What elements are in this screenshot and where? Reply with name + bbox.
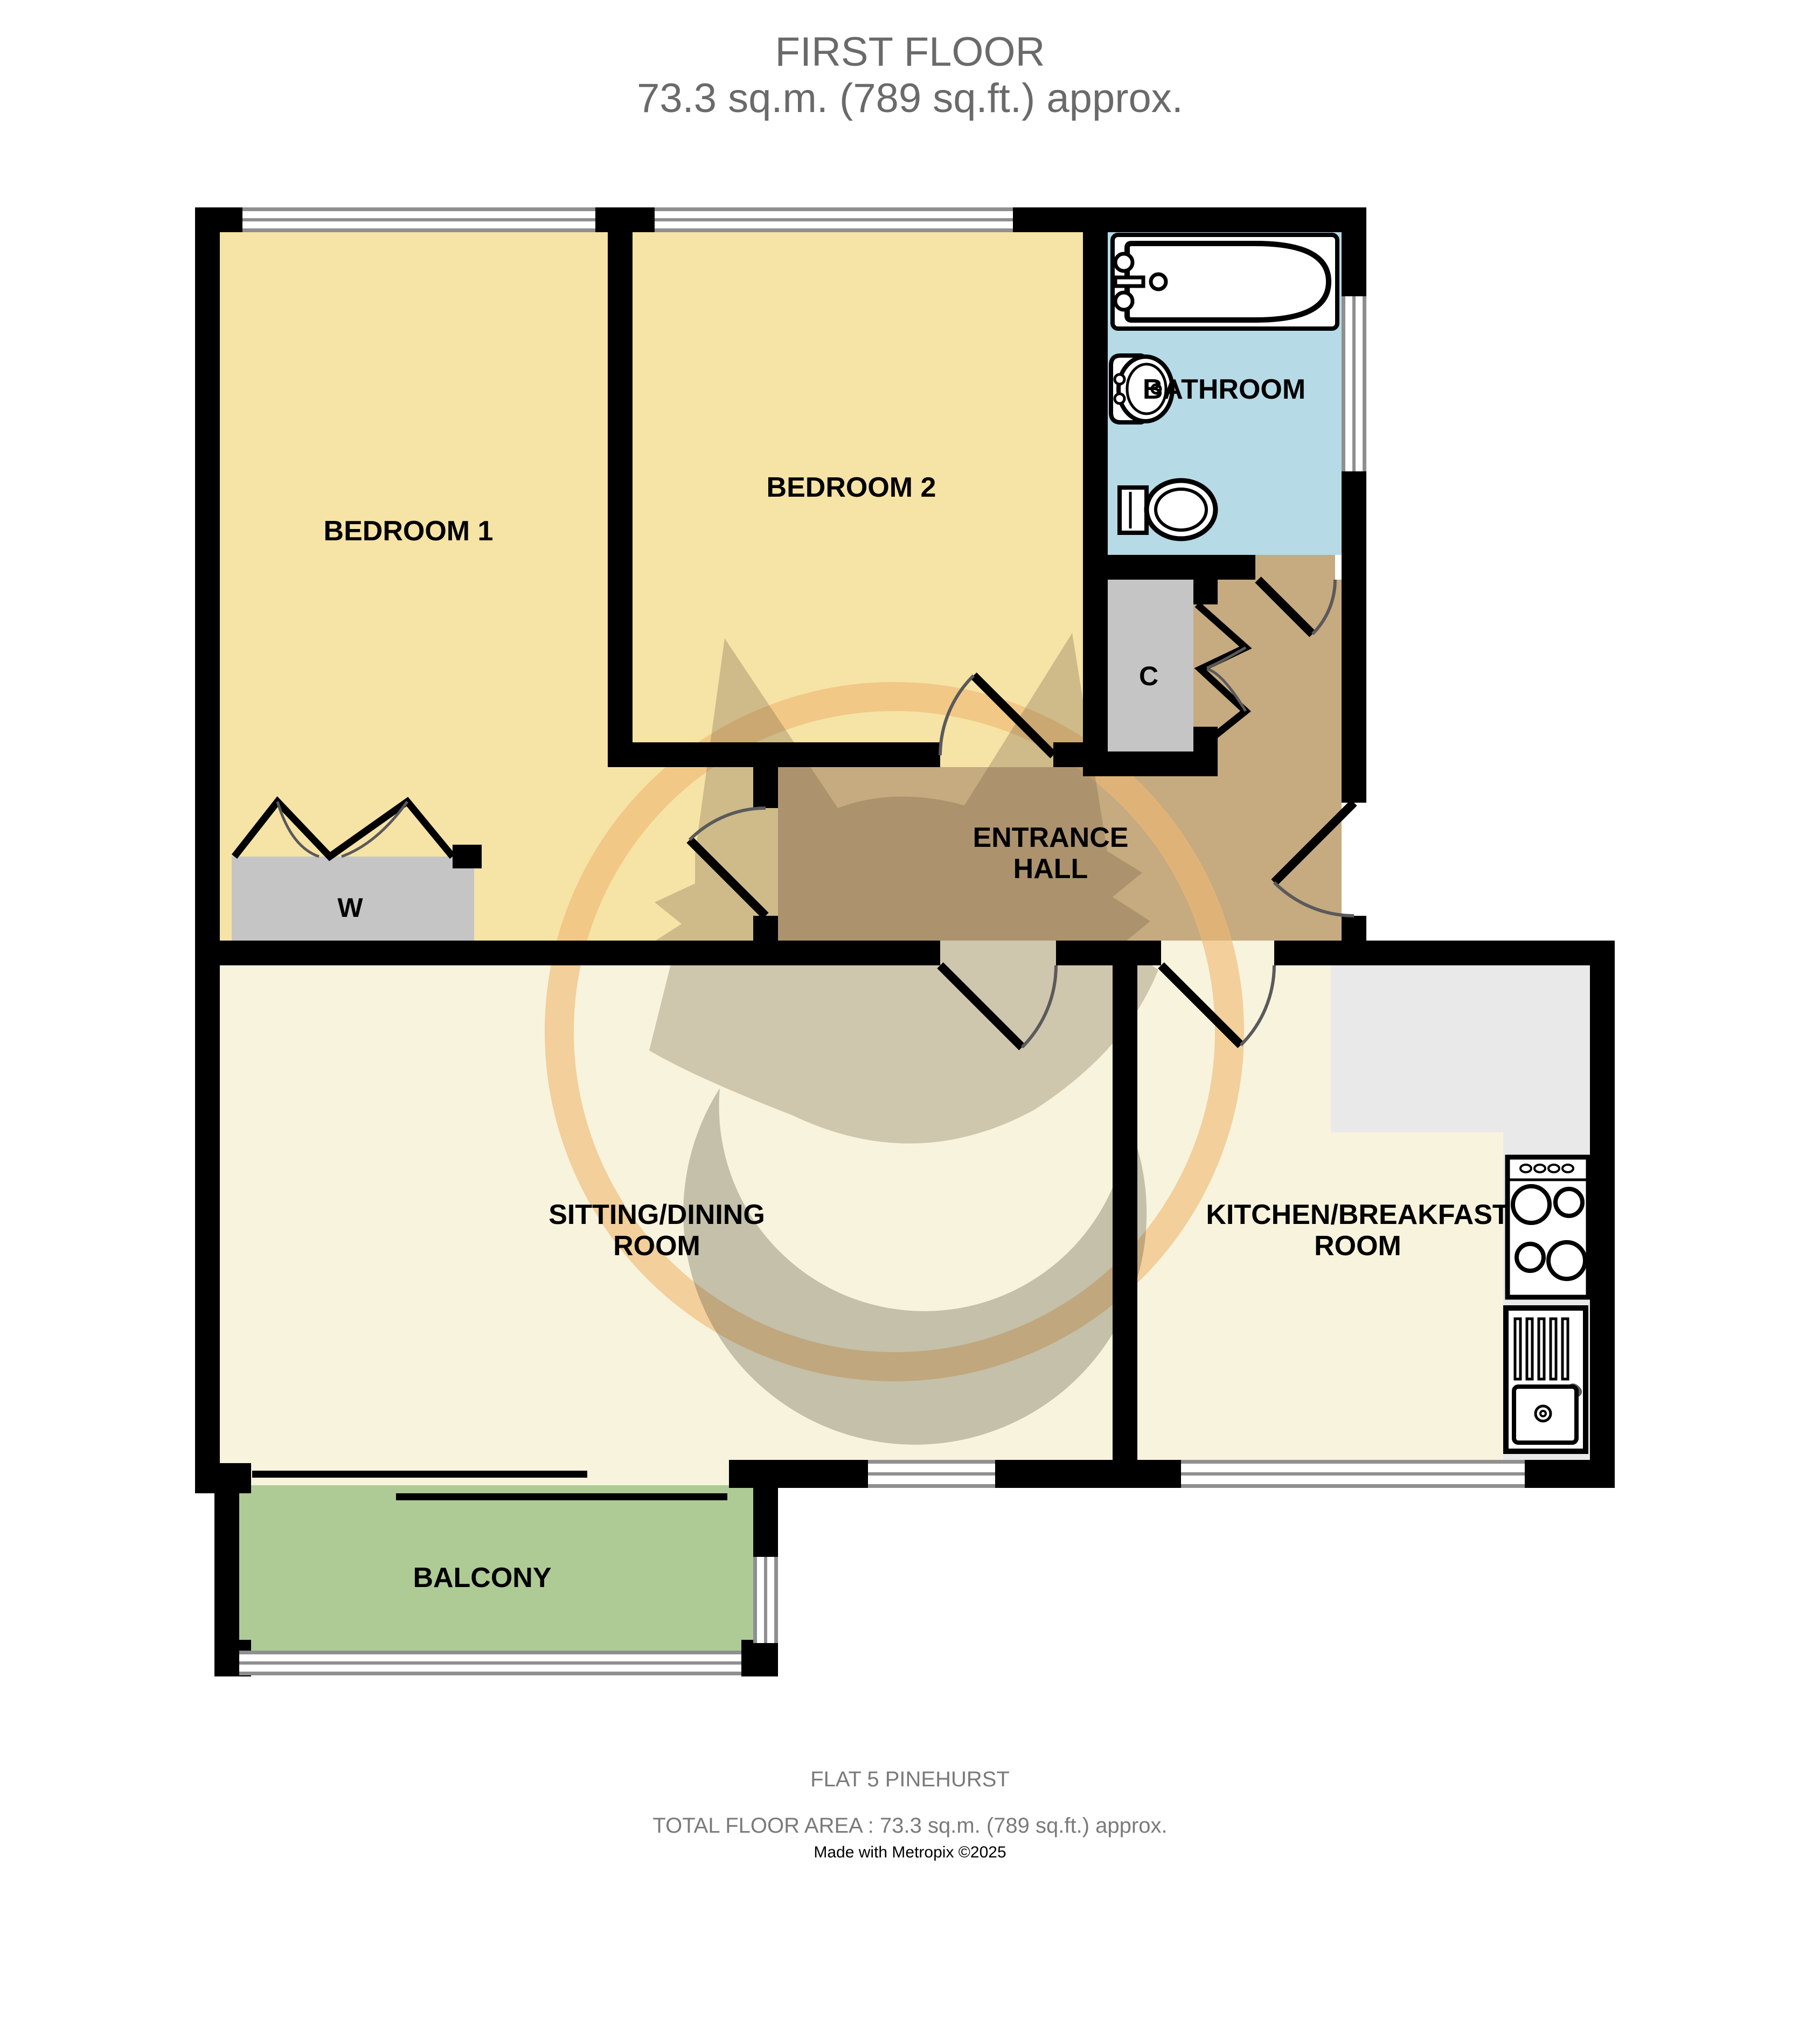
- room-label-entrance-hall-line1: ENTRANCE: [973, 822, 1129, 853]
- plan-title: FIRST FLOOR 73.3 sq.m. (789 sq.ft.) appr…: [637, 29, 1183, 121]
- floor-plan: BEDROOM 1 BEDROOM 2 BATHROOM C W ENTRANC…: [0, 0, 1820, 2039]
- window-kitchen: [1181, 1460, 1525, 1488]
- balcony-railing: [239, 1651, 741, 1675]
- wall: [1193, 580, 1218, 604]
- room-label-kitchen-line2: ROOM: [1314, 1230, 1401, 1262]
- plan-footer: FLAT 5 PINEHURST TOTAL FLOOR AREA : 73.3…: [652, 1767, 1167, 1861]
- wall: [195, 941, 940, 965]
- window-sitting-room: [868, 1460, 995, 1488]
- wall: [729, 1460, 868, 1488]
- window-balcony-side: [753, 1557, 778, 1643]
- room-label-wardrobe: W: [337, 893, 363, 923]
- wall: [1053, 742, 1083, 767]
- wall: [1590, 941, 1615, 1488]
- kitchen-sink-icon: [1506, 1308, 1586, 1451]
- room-label-entrance-hall-line2: HALL: [1013, 853, 1088, 885]
- sliding-door-leaf: [396, 1493, 727, 1500]
- room-label-bathroom: BATHROOM: [1143, 374, 1305, 405]
- wall: [1274, 941, 1615, 965]
- page-title: FIRST FLOOR: [775, 29, 1045, 75]
- wall: [753, 767, 778, 808]
- wall: [195, 207, 220, 1488]
- toilet-icon: [1120, 481, 1215, 539]
- doorway-bathroom: [1255, 555, 1335, 580]
- wall: [1108, 555, 1255, 580]
- room-label-bedroom-2: BEDROOM 2: [767, 472, 936, 503]
- footer-total-area: TOTAL FLOOR AREA : 73.3 sq.m. (789 sq.ft…: [652, 1814, 1167, 1838]
- bath-icon: [1113, 235, 1337, 329]
- hob-icon: [1508, 1157, 1588, 1297]
- wall: [753, 916, 778, 941]
- room-label-bedroom-1: BEDROOM 1: [324, 516, 494, 547]
- wall: [608, 232, 633, 742]
- wall: [741, 1640, 778, 1676]
- wall: [608, 742, 940, 767]
- room-label-kitchen-line1: KITCHEN/BREAKFAST: [1206, 1199, 1510, 1230]
- sliding-door-leaf: [252, 1471, 587, 1478]
- wall: [1113, 965, 1137, 1460]
- page-subtitle: 73.3 sq.m. (789 sq.ft.) approx.: [637, 75, 1183, 121]
- wall: [1056, 941, 1161, 965]
- wall: [1525, 1460, 1615, 1488]
- room-label-sitting-line1: SITTING/DINING: [548, 1199, 765, 1230]
- room-label-sitting-line2: ROOM: [613, 1230, 700, 1262]
- wall: [1083, 751, 1218, 776]
- wall: [453, 845, 482, 868]
- room-label-cupboard: C: [1139, 661, 1158, 691]
- wall: [1083, 232, 1108, 776]
- footer-property-name: FLAT 5 PINEHURST: [810, 1767, 1010, 1791]
- wall: [753, 1488, 778, 1557]
- room-label-balcony: BALCONY: [413, 1562, 551, 1593]
- window-bedroom-2: [655, 207, 1013, 232]
- window-bathroom: [1342, 296, 1366, 471]
- footer-credit: Made with Metropix ©2025: [814, 1843, 1006, 1861]
- wall: [995, 1460, 1181, 1488]
- window-bedroom-1: [242, 207, 595, 232]
- wall: [214, 1488, 239, 1665]
